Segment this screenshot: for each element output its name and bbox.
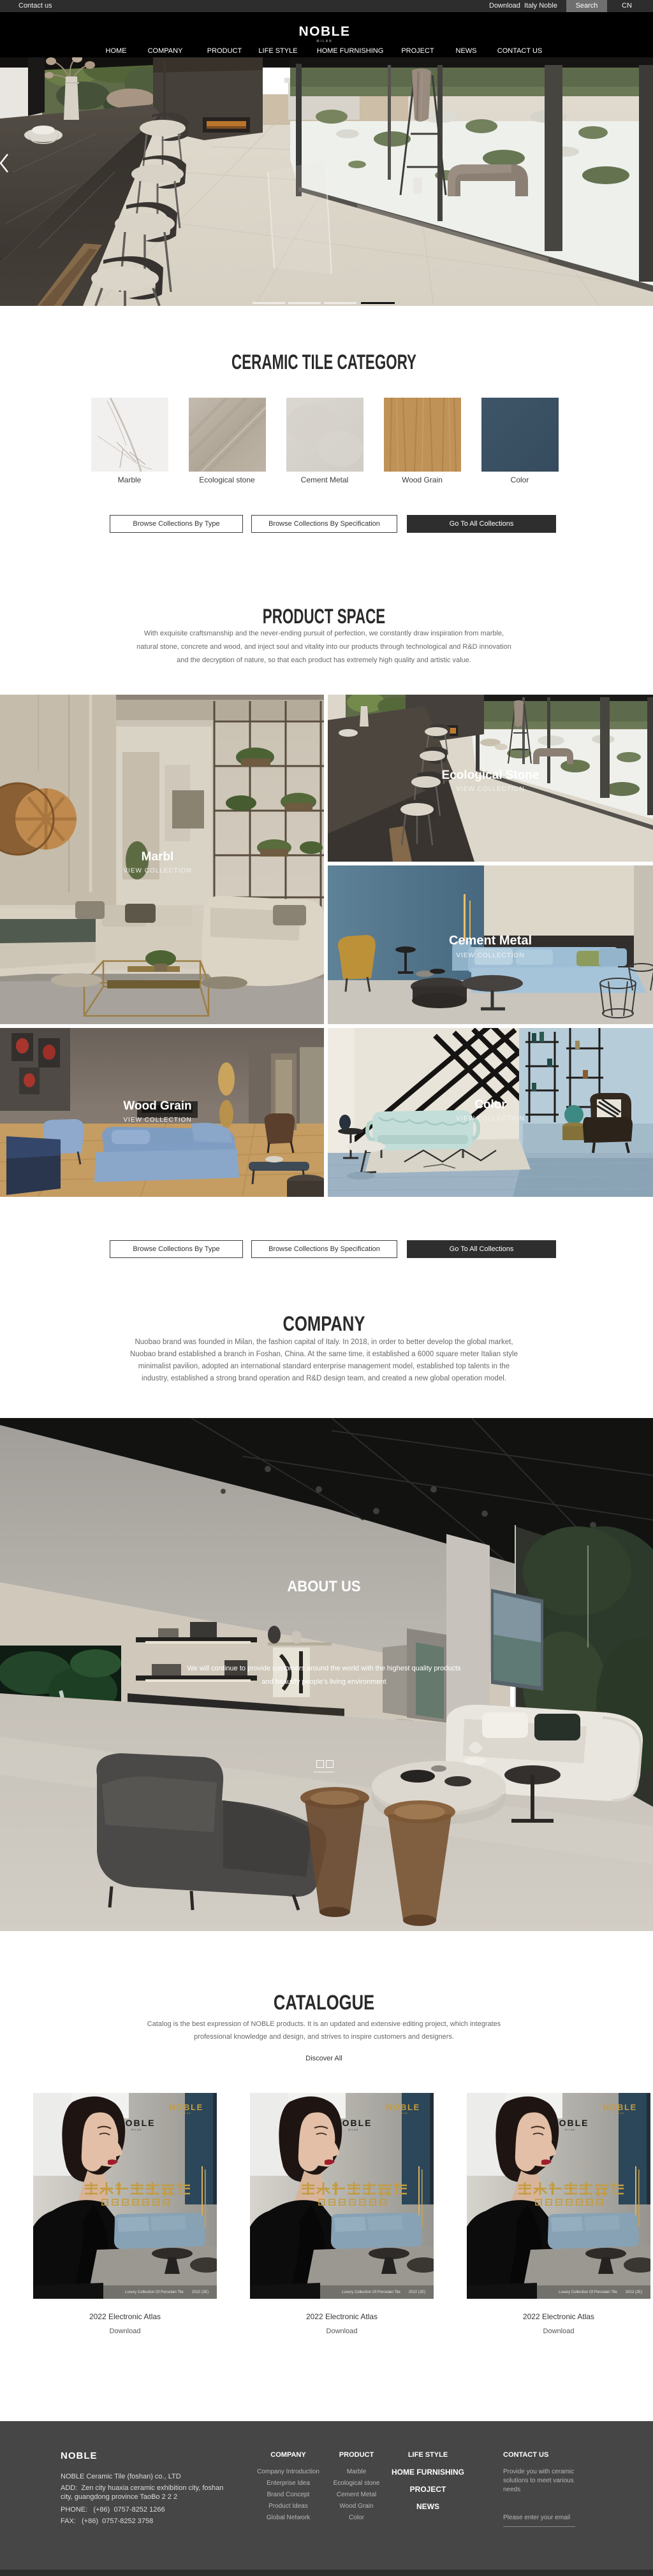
svg-text:NOBLE: NOBLE xyxy=(118,2118,156,2128)
svg-text:NOBLE: NOBLE xyxy=(386,2102,420,2112)
svg-text:Luxury Collection Of Porcelain: Luxury Collection Of Porcelain Tile xyxy=(342,2290,400,2294)
svg-text:2022 (2E): 2022 (2E) xyxy=(409,2290,425,2294)
svg-text:2022 (2E): 2022 (2E) xyxy=(626,2290,642,2294)
svg-text:MILAN: MILAN xyxy=(182,2112,191,2115)
svg-text:Luxury Collection Of Porcelain: Luxury Collection Of Porcelain Tile xyxy=(559,2290,617,2294)
svg-text:NOBLE: NOBLE xyxy=(335,2118,372,2128)
svg-text:NOBLE: NOBLE xyxy=(603,2102,637,2112)
svg-text:MILAN: MILAN xyxy=(131,2129,142,2131)
svg-text:NOBLE: NOBLE xyxy=(552,2118,589,2128)
svg-text:2022 (2E): 2022 (2E) xyxy=(192,2290,209,2294)
svg-text:MILAN: MILAN xyxy=(399,2112,408,2115)
svg-text:MILAN: MILAN xyxy=(615,2112,625,2115)
svg-text:MILAN: MILAN xyxy=(565,2129,575,2131)
svg-text:NOBLE: NOBLE xyxy=(169,2102,203,2112)
svg-text:MILAN: MILAN xyxy=(348,2129,358,2131)
svg-text:Luxury Collection Of Porcelain: Luxury Collection Of Porcelain Tile xyxy=(125,2290,184,2294)
